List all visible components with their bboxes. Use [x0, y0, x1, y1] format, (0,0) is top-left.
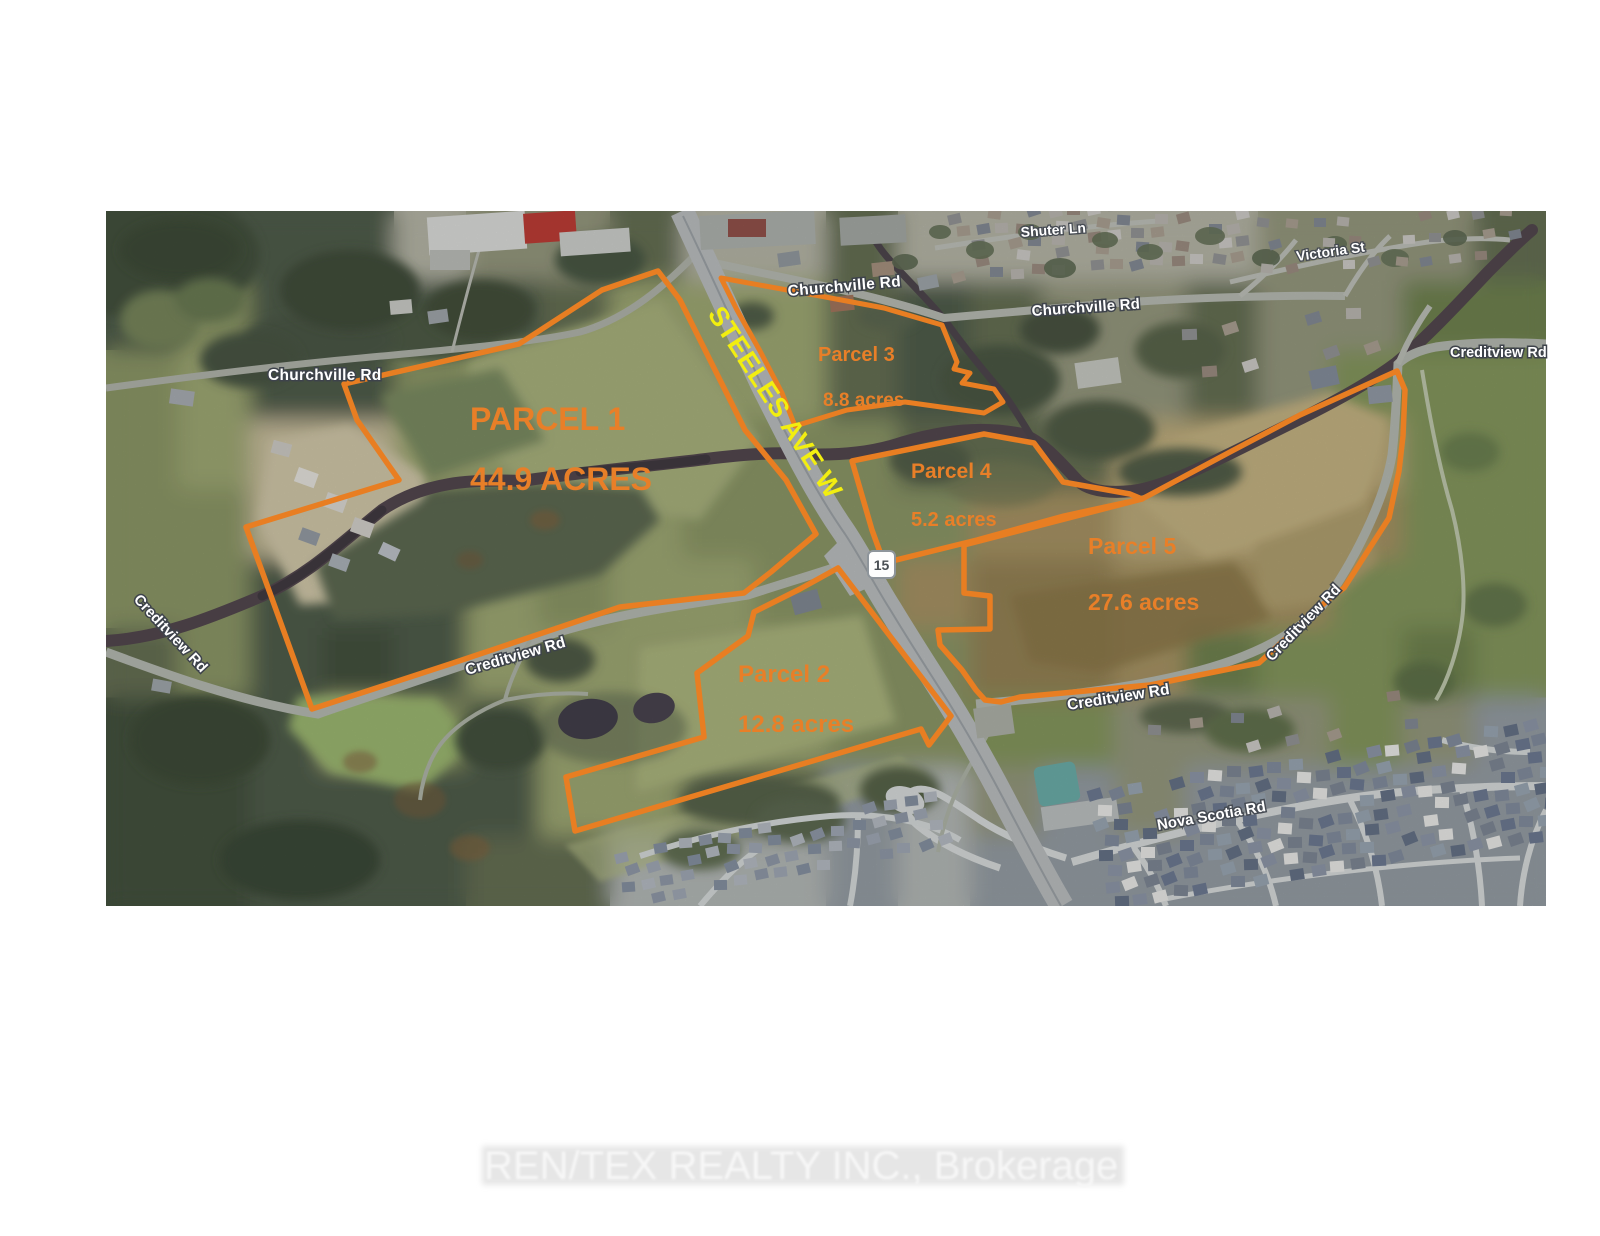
svg-text:Parcel 3: Parcel 3: [818, 344, 895, 366]
svg-text:Churchville Rd: Churchville Rd: [268, 367, 382, 384]
svg-text:Creditview Rd: Creditview Rd: [1450, 345, 1547, 361]
svg-text:PARCEL 1: PARCEL 1: [470, 401, 625, 437]
svg-text:Parcel 5: Parcel 5: [1088, 533, 1176, 559]
svg-text:44.9 ACRES: 44.9 ACRES: [470, 461, 652, 497]
svg-text:Parcel 2: Parcel 2: [738, 661, 830, 688]
svg-text:5.2 acres: 5.2 acres: [911, 509, 997, 531]
svg-text:15: 15: [874, 557, 890, 573]
svg-text:12.8 acres: 12.8 acres: [738, 711, 854, 738]
svg-text:27.6 acres: 27.6 acres: [1088, 589, 1199, 615]
svg-text:Parcel 4: Parcel 4: [911, 460, 992, 483]
svg-text:REN/TEX REALTY INC., Brokerage: REN/TEX REALTY INC., Brokerage: [484, 1144, 1118, 1188]
svg-text:8.8 acres: 8.8 acres: [823, 390, 904, 411]
